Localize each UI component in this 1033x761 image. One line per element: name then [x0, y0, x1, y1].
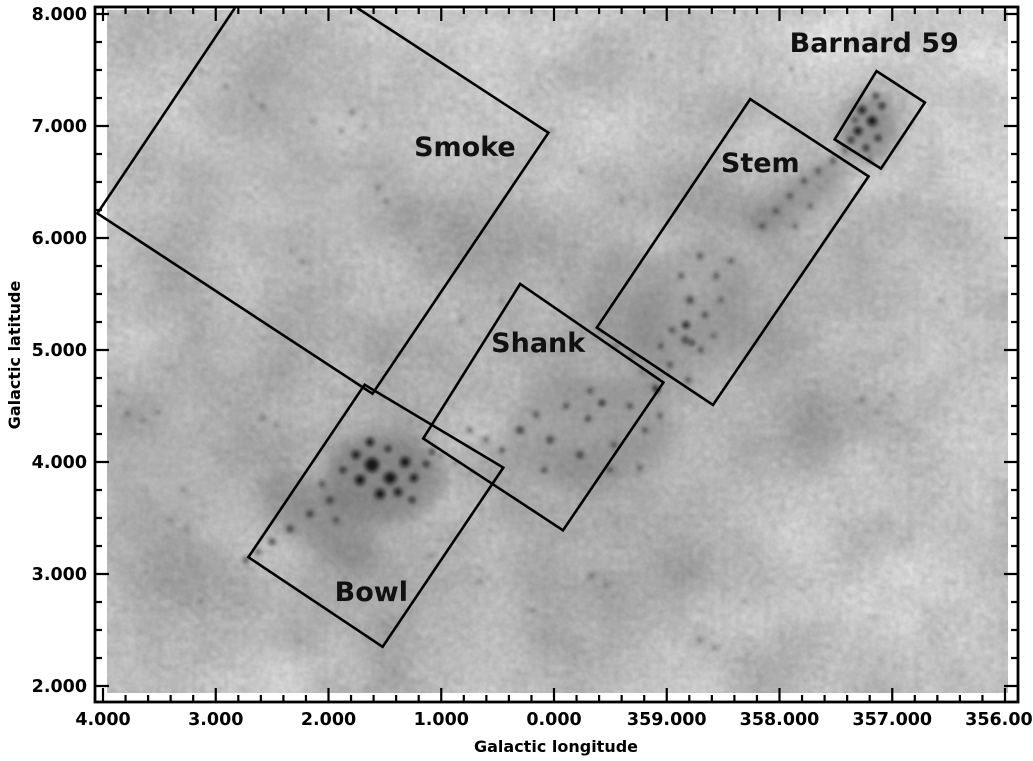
- x-tick-label-359.000: 359.000: [627, 710, 707, 730]
- region-label-stem: Stem: [721, 148, 800, 179]
- y-tick-label-8.000: 8.000: [32, 5, 87, 25]
- x-tick-label-358.000: 358.000: [740, 710, 820, 730]
- region-label-smoke: Smoke: [414, 132, 516, 163]
- x-tick-label-357.000: 357.000: [852, 710, 932, 730]
- x-tick-label-1.000: 1.000: [414, 710, 469, 730]
- y-axis-title: Galactic latitude: [5, 281, 24, 430]
- figure-canvas: SmokeShankBowlStemBarnard 59 4.0003.0002…: [0, 0, 1033, 761]
- x-axis-title: Galactic longitude: [474, 737, 638, 756]
- y-axis-tick-labels: 8.0007.0006.0005.0004.0003.0002.000: [32, 5, 87, 697]
- x-tick-label-3.000: 3.000: [188, 710, 243, 730]
- region-label-bowl: Bowl: [335, 577, 408, 608]
- x-tick-label-0.000: 0.000: [526, 710, 581, 730]
- y-tick-label-5.000: 5.000: [32, 341, 87, 361]
- y-tick-label-6.000: 6.000: [32, 229, 87, 249]
- region-label-shank: Shank: [491, 328, 586, 359]
- region-label-barnard-59: Barnard 59: [790, 28, 959, 59]
- x-tick-label-4.000: 4.000: [75, 710, 130, 730]
- y-tick-label-7.000: 7.000: [32, 117, 87, 137]
- y-tick-label-4.000: 4.000: [32, 453, 87, 473]
- x-tick-label-356.000: 356.000: [965, 710, 1033, 730]
- x-tick-label-2.000: 2.000: [301, 710, 356, 730]
- x-axis-tick-labels: 4.0003.0002.0001.0000.000359.000358.0003…: [75, 710, 1033, 730]
- pipe-nebula-figure: SmokeShankBowlStemBarnard 59 4.0003.0002…: [0, 0, 1033, 761]
- y-tick-label-2.000: 2.000: [32, 677, 87, 697]
- y-tick-label-3.000: 3.000: [32, 565, 87, 585]
